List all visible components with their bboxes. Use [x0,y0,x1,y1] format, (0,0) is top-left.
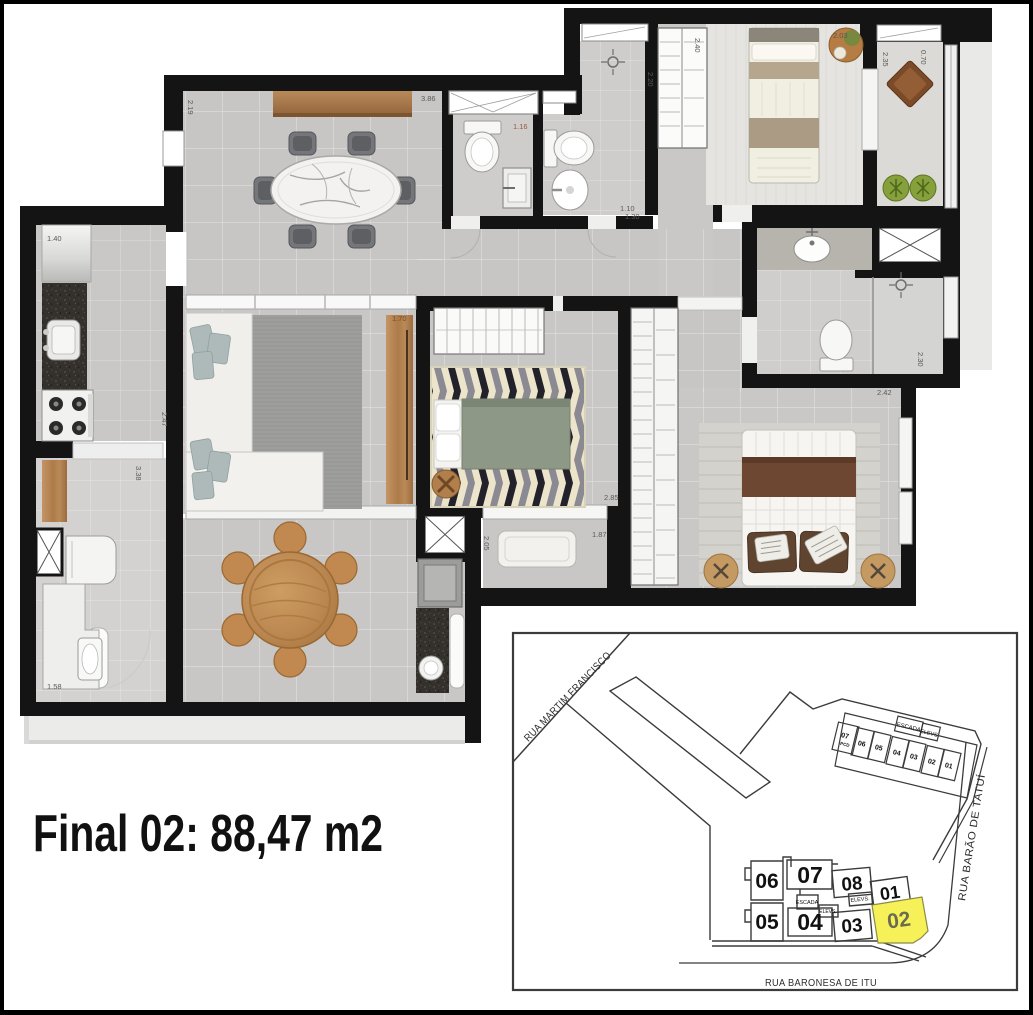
svg-text:2.35: 2.35 [881,52,890,67]
svg-text:02: 02 [886,907,912,933]
svg-text:3.38: 3.38 [134,466,143,481]
svg-text:1.70: 1.70 [392,314,407,323]
svg-text:2.03: 2.03 [833,31,848,40]
svg-text:1.16: 1.16 [513,122,528,131]
svg-text:2.30: 2.30 [916,352,925,367]
svg-text:2.19: 2.19 [186,100,195,115]
svg-text:01: 01 [879,882,902,905]
svg-text:2.20: 2.20 [646,72,655,87]
svg-text:2.05: 2.05 [482,536,491,551]
svg-text:05: 05 [755,911,779,934]
svg-text:ELEVS.: ELEVS. [819,909,837,915]
svg-text:0.70: 0.70 [919,50,928,65]
svg-text:RUA BARONESA DE ITU: RUA BARONESA DE ITU [765,977,877,989]
svg-text:1.58: 1.58 [47,682,62,691]
svg-text:1.87: 1.87 [592,530,607,539]
svg-text:08: 08 [841,873,864,896]
svg-text:Final 02: 88,47 m2: Final 02: 88,47 m2 [33,805,383,863]
svg-text:2.47: 2.47 [160,412,169,427]
svg-text:ESCADA: ESCADA [796,900,819,906]
svg-text:1.40: 1.40 [47,234,62,243]
svg-text:2.40: 2.40 [693,38,702,53]
svg-text:1.30: 1.30 [625,212,640,221]
svg-text:2.42: 2.42 [877,388,892,397]
svg-text:3.86: 3.86 [421,94,436,103]
svg-text:06: 06 [755,870,778,893]
svg-text:2.85: 2.85 [604,493,619,502]
svg-text:07: 07 [797,862,823,888]
svg-text:03: 03 [841,915,864,938]
